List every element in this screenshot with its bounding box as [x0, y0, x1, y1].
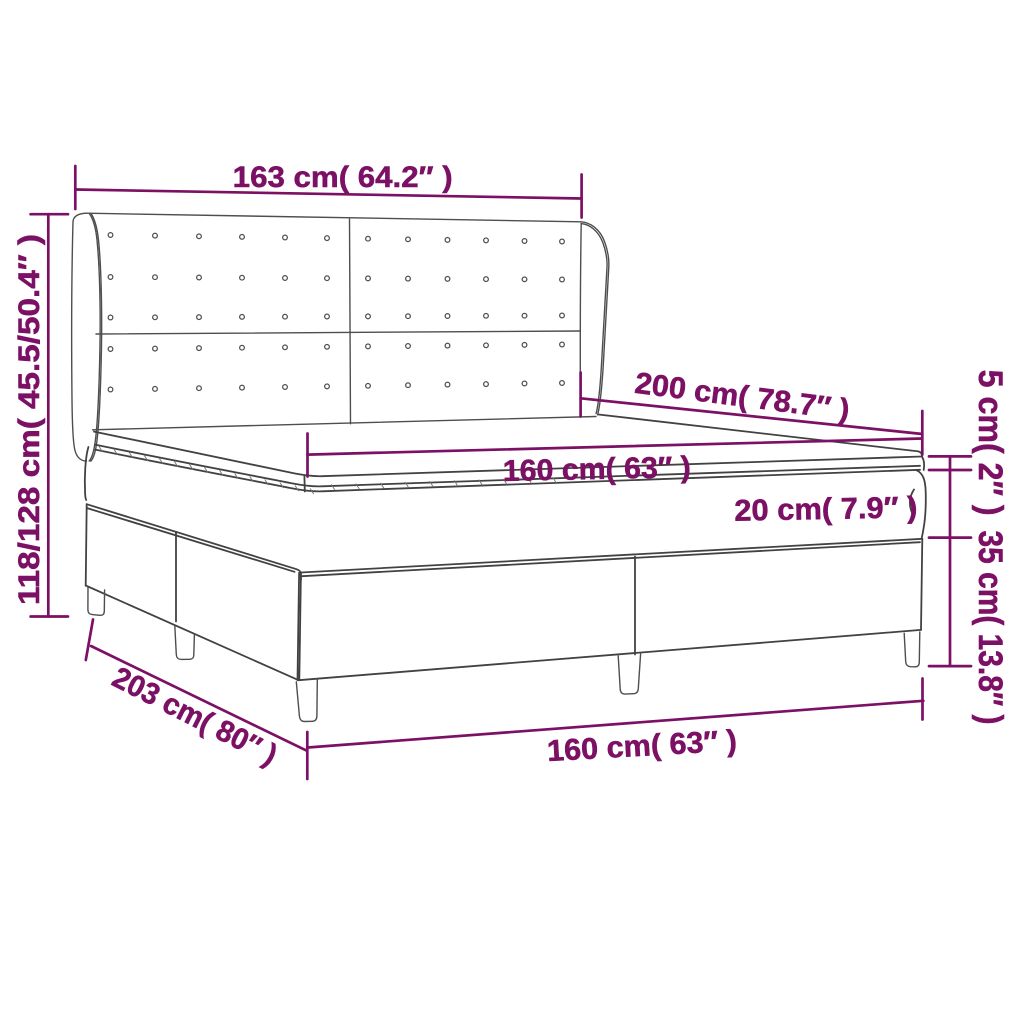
svg-text:118/128 cm( 45.5/50.4″ ): 118/128 cm( 45.5/50.4″ )	[13, 234, 46, 605]
svg-text:160 cm( 63″ ): 160 cm( 63″ )	[502, 451, 691, 488]
svg-text:200 cm( 78.7″ ): 200 cm( 78.7″ )	[633, 367, 851, 427]
svg-text:20 cm( 7.9″ ): 20 cm( 7.9″ )	[734, 491, 918, 528]
svg-text:203 cm( 80″ ): 203 cm( 80″ )	[107, 661, 282, 772]
svg-text:35 cm( 13.8″ ): 35 cm( 13.8″ )	[971, 531, 1009, 725]
svg-text:5 cm( 2″ ): 5 cm( 2″ )	[971, 370, 1009, 516]
svg-text:160 cm( 63″ ): 160 cm( 63″ )	[546, 725, 738, 769]
svg-text:163 cm( 64.2″ ): 163 cm( 64.2″ )	[233, 161, 453, 194]
